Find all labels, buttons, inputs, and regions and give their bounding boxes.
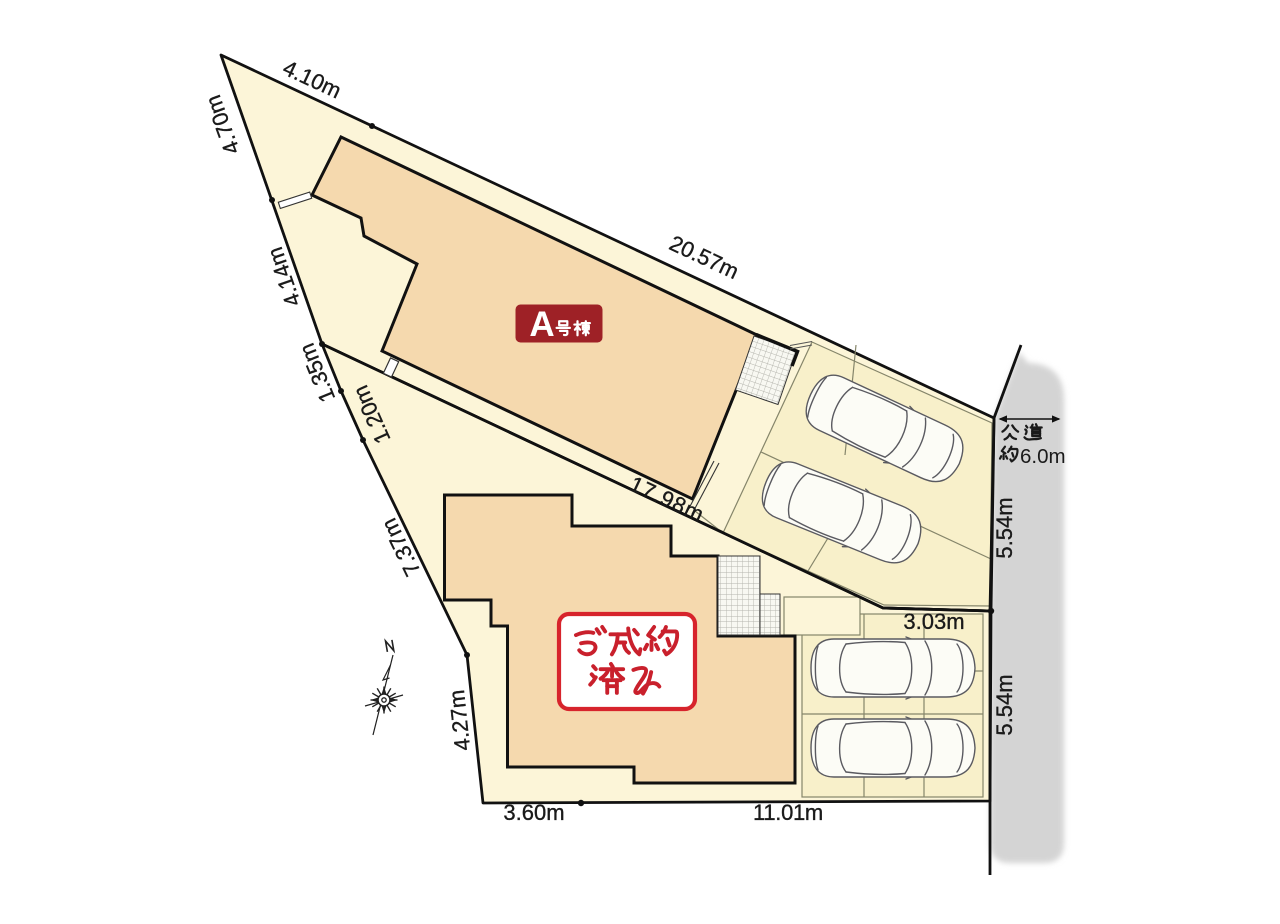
svg-text:3.60m: 3.60m xyxy=(503,800,564,825)
svg-text:3.03m: 3.03m xyxy=(903,609,964,634)
svg-text:11.01m: 11.01m xyxy=(753,800,823,825)
svg-text:5.54m: 5.54m xyxy=(992,674,1017,735)
svg-text:A: A xyxy=(529,305,554,344)
svg-text:6.0m: 6.0m xyxy=(1020,445,1066,468)
svg-text:5.54m: 5.54m xyxy=(992,497,1017,558)
